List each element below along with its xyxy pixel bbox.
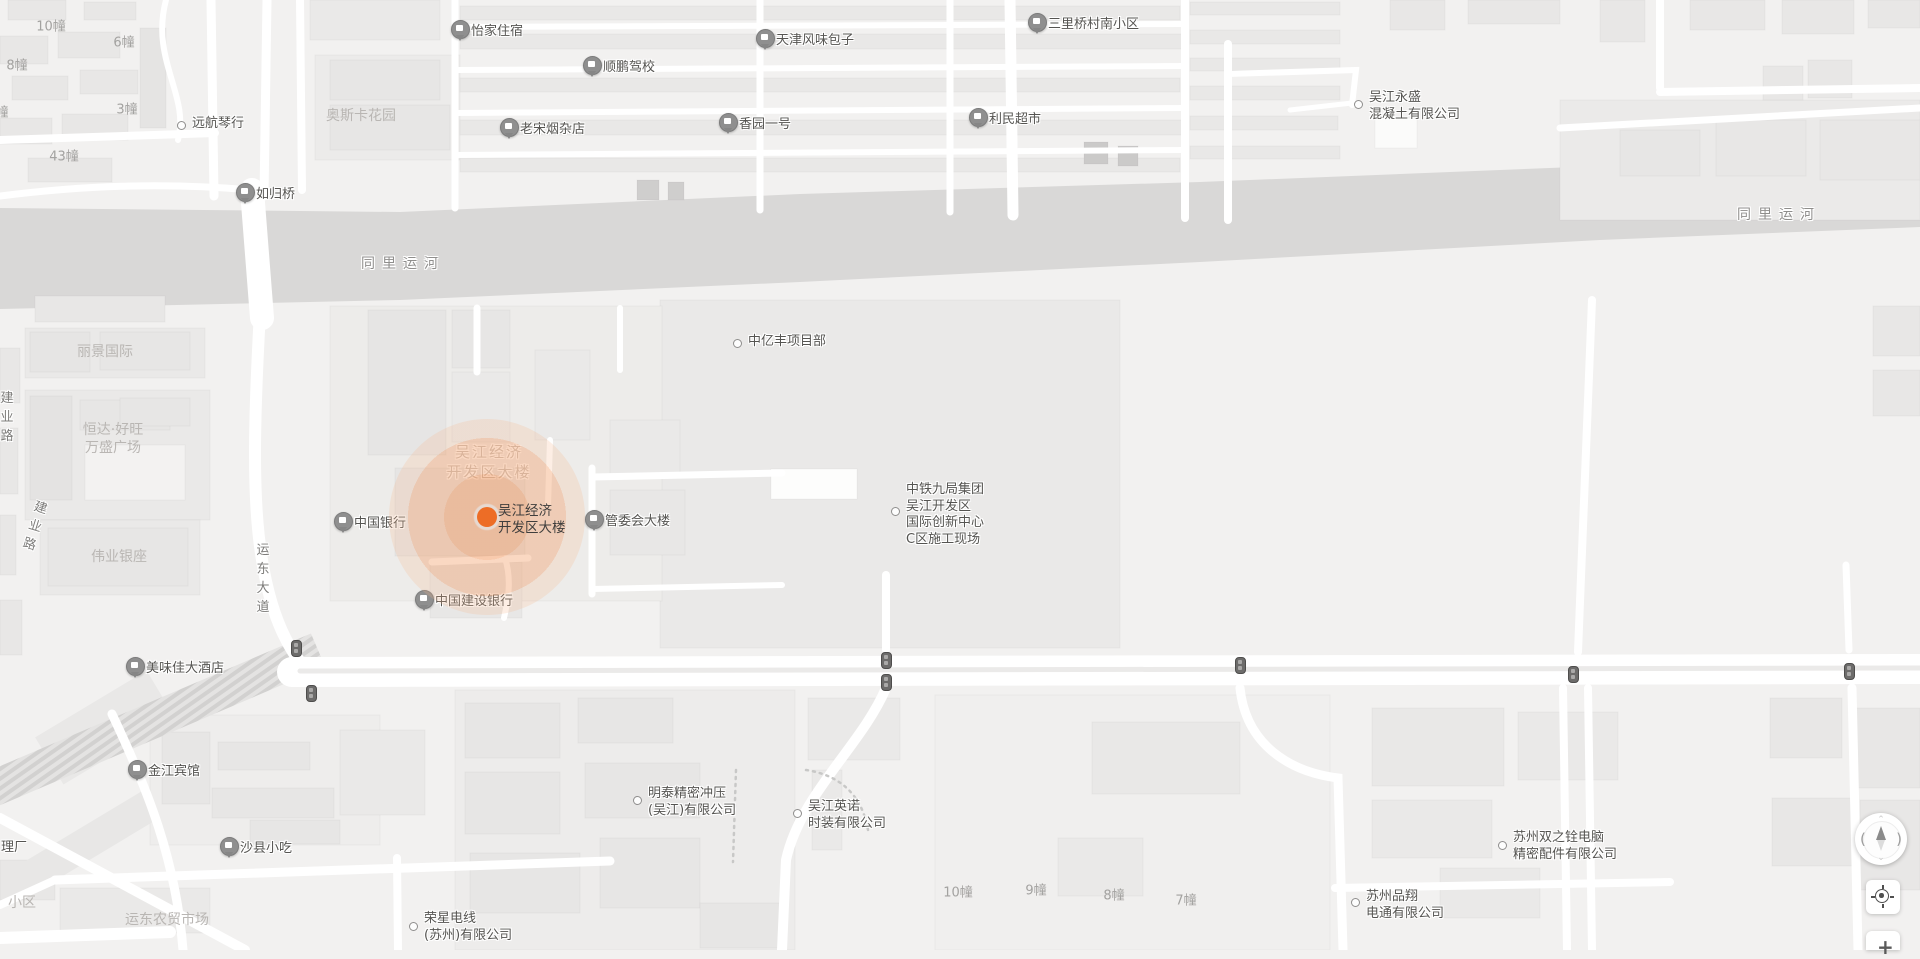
building xyxy=(35,296,165,322)
building-number: 6幢 xyxy=(113,32,134,51)
poi-label[interactable]: 明泰精密冲压(吴江)有限公司 xyxy=(648,786,736,819)
building xyxy=(700,903,782,948)
poi-dot-icon[interactable] xyxy=(1354,100,1363,109)
road xyxy=(1588,688,1592,950)
road xyxy=(592,585,782,589)
building xyxy=(0,515,16,575)
poi-dot-icon[interactable] xyxy=(633,796,642,805)
road xyxy=(0,932,170,938)
road-name-label: 运东大道 xyxy=(256,541,269,617)
traffic-light-icon xyxy=(306,685,317,702)
bank-icon xyxy=(420,595,427,601)
building xyxy=(340,730,425,815)
road xyxy=(1563,688,1567,950)
building xyxy=(465,772,560,834)
map-screenshot: { "map": { "background": "#f2f1f0", "wat… xyxy=(0,0,1920,950)
building xyxy=(1092,722,1240,794)
bridge-icon[interactable] xyxy=(236,183,255,202)
area-label: 伟业银座 xyxy=(91,548,147,566)
building xyxy=(1190,30,1340,44)
rotate-left-icon[interactable]: ( xyxy=(1860,830,1866,848)
building xyxy=(1600,0,1645,42)
road xyxy=(300,0,302,190)
building xyxy=(1868,0,1920,28)
poi-label[interactable]: 沙县小吃 xyxy=(240,837,292,856)
traffic-light-icon xyxy=(1844,663,1855,680)
zoom-in-icon: + xyxy=(1877,935,1894,959)
road-name-label: 建业路 xyxy=(0,389,13,446)
compass-south-needle-icon xyxy=(1877,840,1885,851)
building xyxy=(1058,838,1143,896)
building xyxy=(0,600,22,655)
supermarket-icon[interactable] xyxy=(969,108,988,127)
traffic-light-icon xyxy=(1568,666,1579,683)
map-canvas[interactable]: 怡家住宿顺鹏驾校天津风味包子老宋烟杂店香园一号利民超市三里桥村南小区如归桥中国银… xyxy=(0,0,1920,950)
poi-label[interactable]: 金江宾馆 xyxy=(148,760,200,779)
building-number: 幢 xyxy=(0,102,9,121)
building xyxy=(310,0,440,40)
building-number: 10幢 xyxy=(943,882,973,901)
poi-label[interactable]: 美味佳大酒店 xyxy=(146,657,224,676)
building xyxy=(460,78,1180,92)
building xyxy=(1190,146,1340,159)
shop-icon[interactable] xyxy=(500,118,519,137)
poi-dot-icon[interactable] xyxy=(1498,841,1507,850)
compass-north-needle-icon xyxy=(1876,826,1886,840)
road xyxy=(300,668,1920,671)
area-label: 运东农贸市场 xyxy=(125,911,209,929)
building xyxy=(1852,708,1920,788)
building xyxy=(212,788,334,818)
building xyxy=(610,420,680,475)
residence-icon[interactable] xyxy=(1028,13,1047,32)
building xyxy=(1770,698,1842,758)
poi-label[interactable]: 荣星电线(苏州)有限公司 xyxy=(424,911,512,944)
road xyxy=(1660,88,1920,92)
locate-tick-bottom xyxy=(1882,904,1884,908)
canal-name-label: 同里运河 xyxy=(1737,204,1821,224)
building xyxy=(330,60,440,100)
traffic-light-icon xyxy=(1235,657,1246,674)
building xyxy=(1390,0,1445,30)
building-number: 7幢 xyxy=(1175,890,1196,909)
road xyxy=(1852,688,1858,950)
building xyxy=(1820,120,1920,180)
area-label: 小区 xyxy=(8,894,36,912)
poi-label[interactable]: 香园一号 xyxy=(739,113,791,132)
area-label: 丽景国际 xyxy=(77,343,133,361)
poi-label: 理厂 xyxy=(1,836,27,855)
building xyxy=(58,32,120,58)
road xyxy=(455,150,1185,155)
building xyxy=(84,2,136,20)
lodging-icon[interactable] xyxy=(451,20,470,39)
rotate-right-icon[interactable]: ) xyxy=(1896,830,1902,848)
poi-label[interactable]: 中铁九局集团吴江开发区国际创新中心C区施工现场 xyxy=(906,482,984,548)
snack-icon[interactable] xyxy=(220,837,239,856)
building-number: 10幢 xyxy=(36,16,66,35)
restaurant-icon[interactable] xyxy=(126,657,145,676)
building xyxy=(1716,120,1806,176)
poi-label[interactable]: 天津风味包子 xyxy=(776,29,854,48)
locate-tick-top xyxy=(1882,885,1884,889)
food-icon xyxy=(761,34,768,40)
road xyxy=(397,858,398,950)
building xyxy=(1763,66,1803,100)
poi-label[interactable]: 顺鹏驾校 xyxy=(603,56,655,75)
poi-label[interactable]: 远航琴行 xyxy=(192,116,244,133)
compass-control[interactable]: ( ) ⌃ ⌄ xyxy=(1855,813,1907,865)
selected-poi-label[interactable]: 吴江经济 开发区大楼 xyxy=(498,503,566,536)
road xyxy=(455,66,1185,70)
snack-icon xyxy=(225,842,232,848)
driving-school-icon xyxy=(588,61,595,67)
building-number: 43幢 xyxy=(49,146,79,165)
building xyxy=(808,698,900,760)
building xyxy=(535,350,590,440)
locate-tick-left xyxy=(1871,896,1875,898)
traffic-light-icon xyxy=(881,674,892,691)
building xyxy=(637,180,659,200)
selected-poi-marker[interactable] xyxy=(477,507,497,527)
government-icon xyxy=(590,515,597,521)
bank-icon xyxy=(339,517,346,523)
building xyxy=(465,703,560,758)
building xyxy=(30,396,72,500)
zoom-in-button[interactable]: + xyxy=(1866,931,1900,950)
poi-label[interactable]: 中亿丰项目部 xyxy=(748,334,826,351)
road xyxy=(211,0,214,196)
building xyxy=(1372,708,1504,786)
road xyxy=(1290,103,1352,110)
tilt-up-icon[interactable]: ⌃ xyxy=(1876,815,1886,825)
tilt-down-icon[interactable]: ⌄ xyxy=(1876,853,1886,863)
supermarket-icon xyxy=(974,113,981,119)
traffic-light-icon xyxy=(291,640,302,657)
road xyxy=(455,108,1185,113)
building xyxy=(452,310,510,368)
residence-icon[interactable] xyxy=(719,113,738,132)
bank-icon[interactable] xyxy=(334,512,353,531)
poi-label[interactable]: 苏州双之铨电脑精密配件有限公司 xyxy=(1513,830,1617,863)
selected-poi-label-line2: 开发区大楼 xyxy=(498,520,566,537)
building xyxy=(1190,86,1340,100)
building xyxy=(1772,798,1854,866)
road xyxy=(592,473,782,477)
building xyxy=(1440,868,1540,918)
building-number: 8幢 xyxy=(6,55,27,74)
locate-crosshair-icon xyxy=(1875,889,1889,903)
building xyxy=(1873,306,1920,356)
building xyxy=(600,838,700,908)
building xyxy=(1468,0,1560,24)
building xyxy=(218,742,310,770)
driving-school-icon[interactable] xyxy=(583,56,602,75)
map-vector-layer xyxy=(0,0,1920,950)
poi-dot-icon[interactable] xyxy=(733,339,742,348)
building-number: 9幢 xyxy=(1025,880,1046,899)
building xyxy=(1372,800,1492,858)
building xyxy=(578,698,673,743)
building xyxy=(460,158,1180,172)
poi-dot-icon[interactable] xyxy=(1351,898,1360,907)
road xyxy=(1846,565,1849,650)
shop-icon xyxy=(505,123,512,129)
poi-label[interactable]: 老宋烟杂店 xyxy=(520,118,585,137)
locate-tick-right xyxy=(1890,896,1894,898)
lodging-icon xyxy=(456,25,463,31)
road xyxy=(264,0,267,196)
building-number: 8幢 xyxy=(1103,885,1124,904)
traffic-light-icon xyxy=(881,652,892,669)
poi-label[interactable]: 如归桥 xyxy=(256,183,295,202)
building xyxy=(1690,0,1765,30)
poi-dot-icon[interactable] xyxy=(409,922,418,931)
bridge-icon xyxy=(241,188,248,194)
building xyxy=(1190,116,1338,130)
poi-label[interactable]: 三里桥村南小区 xyxy=(1048,13,1139,32)
residence-icon xyxy=(1033,18,1040,24)
food-icon[interactable] xyxy=(756,29,775,48)
poi-label[interactable]: 吴江英诺时装有限公司 xyxy=(808,799,886,832)
building xyxy=(80,70,138,94)
poi-label[interactable]: 苏州品翔电通有限公司 xyxy=(1366,889,1444,922)
building xyxy=(1190,2,1340,15)
government-icon[interactable] xyxy=(585,510,604,529)
selected-poi-label-line1: 吴江经济 xyxy=(498,503,566,520)
poi-dot-icon[interactable] xyxy=(793,809,802,818)
building xyxy=(1782,0,1854,34)
poi-label[interactable]: 利民超市 xyxy=(989,108,1041,127)
hotel-icon[interactable] xyxy=(128,760,147,779)
building-number: 3幢 xyxy=(116,99,137,118)
residence-icon xyxy=(724,118,731,124)
poi-dot-icon[interactable] xyxy=(891,507,900,516)
area-label: 恒达·好旺万盛广场 xyxy=(83,421,143,457)
building xyxy=(1873,370,1920,416)
poi-label[interactable]: 怡家住宿 xyxy=(471,20,523,39)
building xyxy=(12,76,68,100)
poi-label[interactable]: 吴江永盛混凝土有限公司 xyxy=(1369,90,1460,123)
area-label: 奥斯卡花园 xyxy=(326,107,396,125)
restaurant-icon xyxy=(131,662,138,668)
building xyxy=(1620,130,1700,176)
road xyxy=(1578,300,1592,652)
locate-me-button[interactable] xyxy=(1866,880,1900,914)
poi-label[interactable]: 管委会大楼 xyxy=(605,510,670,529)
road xyxy=(1335,882,1670,888)
hotel-icon xyxy=(133,765,140,771)
canal-name-label: 同里运河 xyxy=(361,253,445,273)
poi-dot-icon[interactable] xyxy=(177,121,186,130)
road xyxy=(252,190,262,318)
building xyxy=(668,182,684,200)
